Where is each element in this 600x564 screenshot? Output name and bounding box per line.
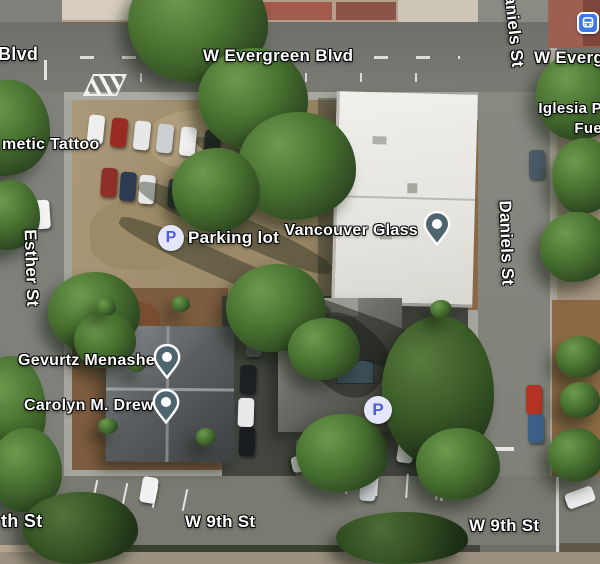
road-label-daniels: Daniels St	[495, 200, 518, 286]
tree	[416, 428, 500, 500]
road-label-9th-center: W 9th St	[185, 512, 255, 532]
poi-label-gevurtz-menashe[interactable]: Gevurtz Menashe	[18, 352, 148, 370]
map-pin-icon[interactable]	[423, 211, 451, 246]
bottom-strip	[560, 543, 600, 552]
car	[119, 171, 137, 201]
map-pin-icon[interactable]	[152, 389, 180, 424]
bush	[560, 382, 600, 418]
building-roof	[398, 0, 478, 22]
car	[133, 120, 152, 151]
car	[100, 167, 118, 197]
car	[528, 414, 544, 443]
poi-label-vancouver-glass[interactable]: Vancouver Glass	[258, 222, 418, 240]
tree	[288, 318, 360, 380]
stop-bar	[44, 60, 47, 80]
parking-icon[interactable]: P	[364, 396, 392, 424]
bush	[172, 296, 190, 312]
poi-label-cosmetic-tattoo[interactable]: metic Tattoo	[2, 136, 100, 154]
car	[156, 123, 175, 154]
poi-iglesia[interactable]: Iglesia P Fue	[538, 99, 600, 139]
car	[529, 150, 545, 179]
top-walkway	[62, 0, 132, 20]
tree	[336, 512, 468, 564]
car	[526, 385, 542, 414]
car	[237, 398, 254, 428]
bus-station-icon[interactable]	[577, 12, 599, 34]
bush	[430, 300, 452, 318]
parking-letter: P	[166, 229, 177, 247]
tree	[172, 148, 260, 232]
bush	[196, 428, 216, 446]
map-pin-icon[interactable]	[153, 344, 181, 379]
road-label-esther: Esther St	[20, 229, 43, 307]
curb-line	[556, 477, 559, 552]
poi-label-iglesia-line1: Iglesia P	[538, 99, 600, 119]
road-label-blvd: Blvd	[0, 44, 38, 65]
bush	[556, 336, 600, 378]
roof-vent	[372, 136, 386, 144]
bush	[96, 298, 116, 316]
car	[110, 117, 129, 148]
road-label-evergreen: W Evergreen Blvd	[203, 46, 353, 66]
bottom-strip	[480, 545, 560, 552]
satellite-map[interactable]: { "map": { "road_labels": { "blvd_partia…	[0, 0, 600, 552]
tree	[296, 414, 388, 492]
road-label-evergreen-right: W Evergreen Blvd	[534, 48, 600, 68]
car	[239, 365, 256, 395]
bottom-strip	[100, 545, 340, 552]
parking-letter: P	[372, 400, 383, 420]
poi-label-carolyn-drew[interactable]: Carolyn M. Drew	[24, 397, 148, 415]
parking-icon[interactable]: P	[158, 225, 184, 251]
roof-vent	[407, 183, 417, 193]
tree	[540, 212, 600, 282]
poi-label-iglesia-line2: Fue	[538, 119, 600, 139]
roof-seam	[337, 195, 475, 201]
car	[238, 427, 255, 457]
road-label-9th-partial: th St	[1, 511, 43, 532]
bus-glyph	[582, 17, 594, 29]
building-roof	[336, 2, 396, 20]
bush	[98, 418, 118, 434]
tree	[548, 428, 600, 482]
road-label-9th-right: W 9th St	[469, 516, 539, 536]
building-vancouver-glass	[331, 91, 478, 308]
